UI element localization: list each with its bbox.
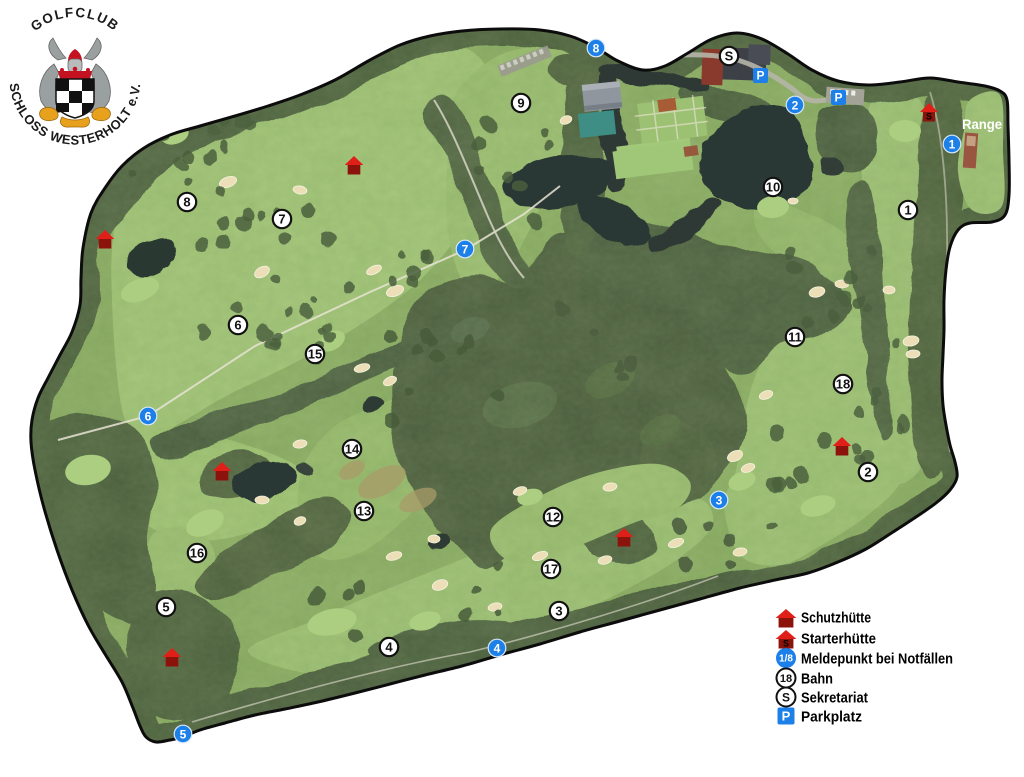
svg-text:15: 15 xyxy=(308,347,322,362)
svg-text:18: 18 xyxy=(780,673,792,685)
svg-text:7: 7 xyxy=(278,212,285,227)
svg-text:Parkplatz: Parkplatz xyxy=(801,709,862,726)
svg-text:S: S xyxy=(782,691,790,705)
svg-text:P: P xyxy=(834,91,842,105)
svg-text:5: 5 xyxy=(180,727,187,741)
svg-text:4: 4 xyxy=(385,640,393,655)
svg-text:8: 8 xyxy=(593,41,600,55)
svg-text:Schutzhütte: Schutzhütte xyxy=(801,610,871,627)
svg-text:S: S xyxy=(783,639,789,649)
svg-text:2: 2 xyxy=(792,98,799,112)
svg-text:1: 1 xyxy=(949,137,956,151)
svg-text:Range: Range xyxy=(962,117,1002,132)
svg-text:Starterhütte: Starterhütte xyxy=(801,631,876,648)
svg-text:S: S xyxy=(725,49,734,64)
svg-text:11: 11 xyxy=(788,330,802,345)
svg-text:5: 5 xyxy=(162,600,169,615)
svg-text:1: 1 xyxy=(904,203,911,218)
svg-text:4: 4 xyxy=(494,641,501,655)
svg-text:13: 13 xyxy=(357,504,371,519)
svg-text:Bahn: Bahn xyxy=(801,671,833,688)
svg-text:3: 3 xyxy=(555,604,562,619)
svg-text:1/8: 1/8 xyxy=(779,654,793,665)
svg-text:14: 14 xyxy=(345,442,360,457)
svg-text:Sekretariat: Sekretariat xyxy=(801,690,868,707)
svg-text:3: 3 xyxy=(716,493,723,507)
svg-text:9: 9 xyxy=(517,96,524,111)
svg-text:7: 7 xyxy=(462,242,469,256)
svg-text:2: 2 xyxy=(864,465,871,480)
svg-text:16: 16 xyxy=(190,546,204,561)
svg-text:17: 17 xyxy=(544,562,558,577)
svg-text:P: P xyxy=(756,69,764,83)
svg-text:6: 6 xyxy=(234,318,241,333)
svg-text:6: 6 xyxy=(145,409,152,423)
svg-text:12: 12 xyxy=(546,510,560,525)
svg-text:S: S xyxy=(926,112,932,122)
svg-text:P: P xyxy=(782,709,791,724)
svg-text:8: 8 xyxy=(183,195,190,210)
svg-text:Meldepunkt bei Notfällen: Meldepunkt bei Notfällen xyxy=(801,651,953,668)
svg-text:18: 18 xyxy=(836,377,850,392)
svg-text:GOLFCLUB: GOLFCLUB xyxy=(28,5,122,34)
svg-text:10: 10 xyxy=(766,180,780,195)
